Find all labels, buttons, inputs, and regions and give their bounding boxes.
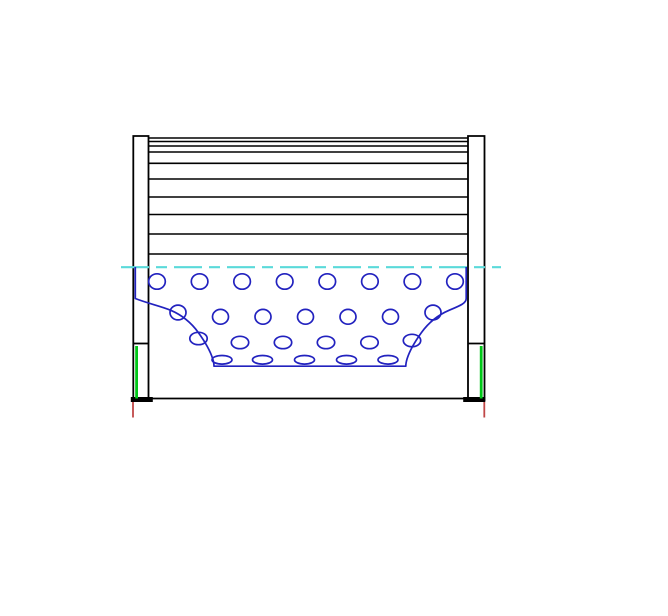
core-hole bbox=[298, 309, 314, 324]
core-hole-partial bbox=[403, 334, 420, 346]
core-hole bbox=[361, 336, 378, 348]
core-hole bbox=[340, 309, 356, 324]
core-hole bbox=[447, 274, 464, 289]
core-hole bbox=[253, 356, 273, 365]
core-hole-partial bbox=[425, 305, 441, 320]
core-hole bbox=[234, 274, 251, 289]
filter-element-diagram bbox=[0, 0, 668, 616]
core-hole bbox=[404, 274, 421, 289]
screenshot-root: { "canvas": { "width": 668, "height": 61… bbox=[0, 0, 668, 616]
core-hole bbox=[319, 274, 336, 289]
core-hole bbox=[213, 309, 229, 324]
core-hole bbox=[191, 274, 208, 289]
core-hole bbox=[383, 309, 399, 324]
core-hole bbox=[378, 356, 398, 365]
core-hole bbox=[149, 274, 166, 289]
core-hole bbox=[212, 356, 232, 365]
core-hole bbox=[362, 274, 379, 289]
bottom-bar bbox=[131, 397, 153, 402]
core-hole bbox=[295, 356, 315, 365]
core-hole-partial bbox=[170, 305, 186, 320]
core-hole bbox=[317, 336, 334, 348]
core-hole bbox=[274, 336, 291, 348]
core-hole bbox=[276, 274, 293, 289]
core-hole bbox=[255, 309, 271, 324]
core-hole bbox=[231, 336, 248, 348]
core-hole bbox=[337, 356, 357, 365]
drawing-viewport bbox=[0, 0, 668, 616]
